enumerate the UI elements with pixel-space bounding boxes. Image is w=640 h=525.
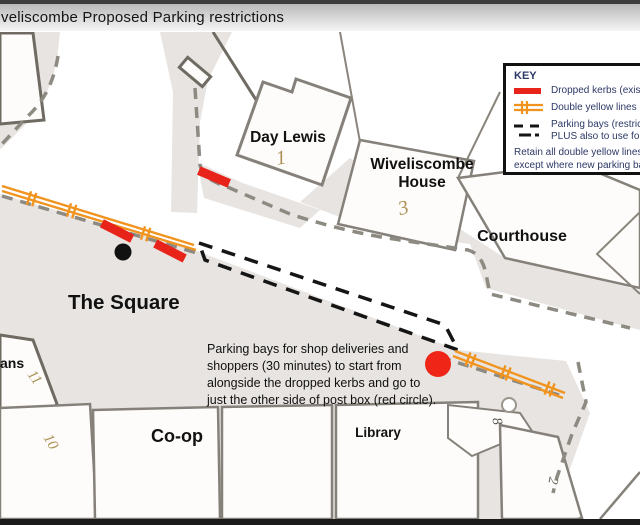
parking-bay-swatch-icon (514, 123, 544, 139)
key-heading: KEY (514, 70, 640, 82)
label-wiveliscombe-line1: Wiveliscombe (370, 156, 474, 173)
plot-line-bottom-right (600, 472, 640, 519)
label-day-lewis: Day Lewis (250, 129, 326, 146)
key-item-double-yellow: Double yellow lines PLU (514, 101, 640, 115)
key-item-label-line2: PLUS also to use for sh (551, 131, 640, 143)
map-key-box: KEY Dropped kerbs (existing Double yello… (503, 63, 640, 175)
annotation-line-4: just the other side of post box (red cir… (206, 393, 436, 407)
annotation-line-3: alongside the dropped kerbs and go to (207, 376, 420, 390)
key-item-label: Dropped kerbs (existing (551, 85, 640, 97)
title-bar: veliscombe Proposed Parking restrictions (0, 0, 640, 31)
label-coop: Co-op (151, 426, 203, 446)
annotation-line-1: Parking bays for shop deliveries and (207, 342, 409, 356)
plot-line-daylewis-west (213, 32, 258, 103)
double-yellow-swatch-icon (514, 101, 544, 115)
road-edge-bump (502, 398, 516, 412)
black-dot-marker (115, 244, 132, 261)
dropped-kerb-swatch-icon (514, 87, 544, 95)
key-item-dropped-kerbs: Dropped kerbs (existing (514, 85, 640, 97)
key-note-line1: Retain all double yellow lines a (514, 147, 640, 160)
building-mid (222, 405, 332, 519)
annotation-line-2: shoppers (30 minutes) to start from (207, 359, 402, 373)
building-ten (0, 404, 97, 519)
label-library: Library (355, 425, 401, 440)
key-item-label: Double yellow lines PLU (551, 102, 640, 114)
label-the-square: The Square (68, 291, 180, 314)
key-note: Retain all double yellow lines a except … (514, 147, 640, 172)
building-coop (93, 407, 220, 519)
key-item-parking-bays: Parking bays (restricted PLUS also to us… (514, 119, 640, 143)
label-courthouse: Courthouse (477, 228, 567, 245)
key-item-label: Parking bays (restricted PLUS also to us… (551, 119, 640, 143)
key-item-label-line1: Parking bays (restricted (551, 119, 640, 131)
label-wiveliscombe-line2: House (398, 174, 446, 191)
label-ans: ans (0, 355, 24, 371)
page-title: veliscombe Proposed Parking restrictions (1, 9, 284, 26)
map-bottom-border (0, 519, 640, 525)
key-note-line2: except where new parking bays (514, 160, 640, 173)
post-box-marker (425, 351, 451, 377)
